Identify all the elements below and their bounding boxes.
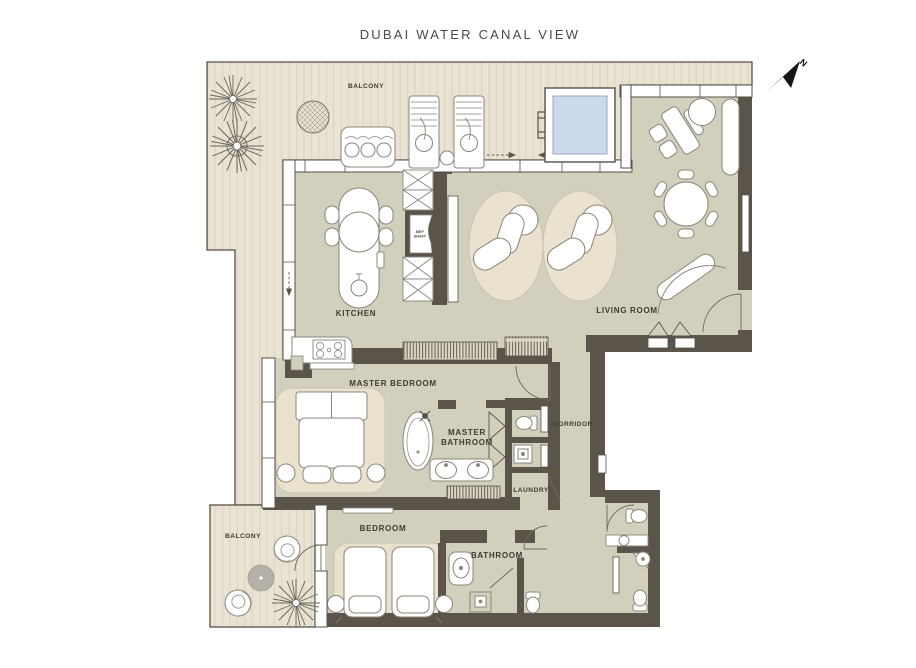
round-side-table bbox=[689, 99, 716, 126]
lounge-chair-set bbox=[469, 191, 543, 301]
plant-icon bbox=[272, 579, 320, 627]
label-master-bathroom-2: BATHROOM bbox=[441, 438, 493, 447]
washroom-vanity bbox=[606, 535, 648, 546]
toilet bbox=[633, 590, 647, 611]
side-table bbox=[440, 151, 454, 165]
label-corridor: CORRIDOR bbox=[553, 421, 593, 428]
north-label: N bbox=[798, 57, 809, 69]
mep-label-1: MEP bbox=[416, 230, 424, 234]
floor-plan-page: DUBAI WATER CANAL VIEW N bbox=[0, 0, 916, 668]
washer bbox=[514, 445, 532, 463]
label-master-bedroom: MASTER BEDROOM bbox=[349, 379, 437, 388]
nightstand bbox=[328, 596, 345, 613]
toilet bbox=[626, 509, 647, 523]
toilet bbox=[526, 592, 540, 613]
plant-icon bbox=[209, 75, 257, 123]
double-vanity bbox=[430, 459, 493, 481]
label-living-room: LIVING ROOM bbox=[596, 306, 657, 315]
media-console bbox=[343, 508, 393, 513]
media-console bbox=[310, 363, 354, 369]
label-laundry: LAUNDRY bbox=[513, 487, 549, 494]
sun-lounger bbox=[409, 96, 439, 168]
mep-label-2: SHAFT bbox=[414, 235, 427, 239]
label-kitchen: KITCHEN bbox=[336, 309, 376, 318]
round-table bbox=[297, 101, 329, 133]
console-bench bbox=[722, 99, 739, 175]
wc-toilet bbox=[516, 416, 537, 430]
plunge-pool bbox=[538, 88, 615, 162]
nightstand bbox=[436, 596, 453, 613]
nightstand bbox=[367, 464, 385, 482]
outdoor-sofa bbox=[341, 127, 395, 167]
north-arrow-icon: N bbox=[765, 57, 809, 93]
mep-shaft: MEP SHAFT bbox=[410, 215, 432, 253]
label-balcony-top: BALCONY bbox=[348, 83, 384, 90]
vanity-sink bbox=[449, 552, 473, 585]
lounge-chair-set bbox=[543, 191, 617, 301]
label-master-bathroom-1: MASTER bbox=[448, 428, 486, 437]
label-bathroom: BATHROOM bbox=[471, 551, 523, 560]
label-bedroom: BEDROOM bbox=[360, 524, 407, 533]
page-title: DUBAI WATER CANAL VIEW bbox=[360, 27, 581, 42]
nightstand bbox=[277, 464, 295, 482]
floor-plan: DUBAI WATER CANAL VIEW N bbox=[0, 0, 916, 668]
sun-lounger bbox=[454, 96, 484, 168]
bathtub bbox=[403, 412, 433, 470]
label-balcony-bottom: BALCONY bbox=[225, 533, 261, 540]
